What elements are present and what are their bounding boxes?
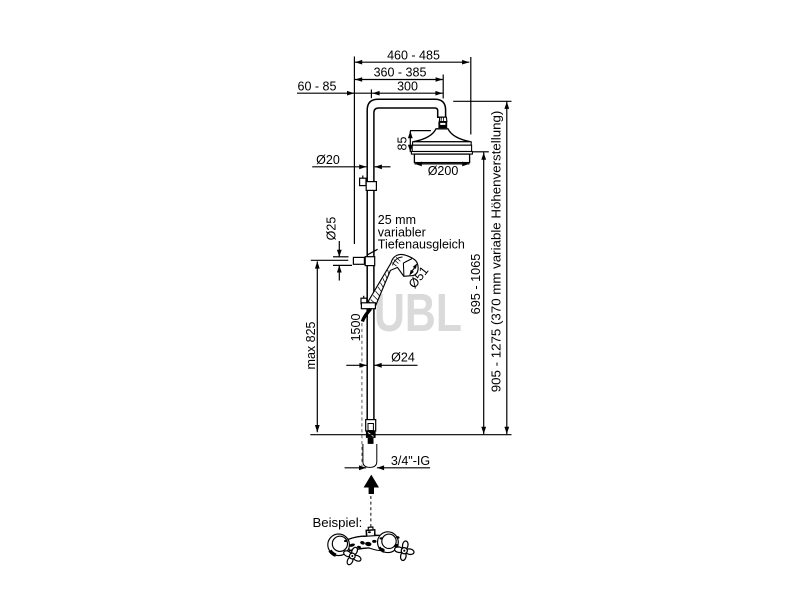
svg-text:Ø24: Ø24 (391, 351, 415, 365)
svg-text:3/4"-IG: 3/4"-IG (391, 454, 430, 468)
svg-text:695 - 1065: 695 - 1065 (469, 254, 483, 315)
svg-text:905 - 1275 (370 mm variable Hö: 905 - 1275 (370 mm variable Höhenverstel… (489, 111, 504, 393)
svg-text:Ø25: Ø25 (325, 217, 339, 241)
svg-text:Beispiel:: Beispiel: (313, 515, 363, 530)
svg-text:460 - 485: 460 - 485 (387, 49, 440, 63)
svg-text:max 825: max 825 (304, 321, 318, 369)
svg-text:60 - 85: 60 - 85 (298, 79, 337, 93)
svg-text:Ø200: Ø200 (428, 164, 459, 178)
svg-text:Tiefenausgleich: Tiefenausgleich (378, 238, 465, 252)
svg-text:Ø20: Ø20 (316, 153, 340, 167)
svg-text:UBL: UBL (374, 283, 462, 343)
svg-text:360 - 385: 360 - 385 (374, 66, 427, 80)
svg-text:85: 85 (396, 137, 410, 151)
svg-text:300: 300 (397, 79, 418, 93)
svg-text:1500: 1500 (349, 314, 363, 342)
